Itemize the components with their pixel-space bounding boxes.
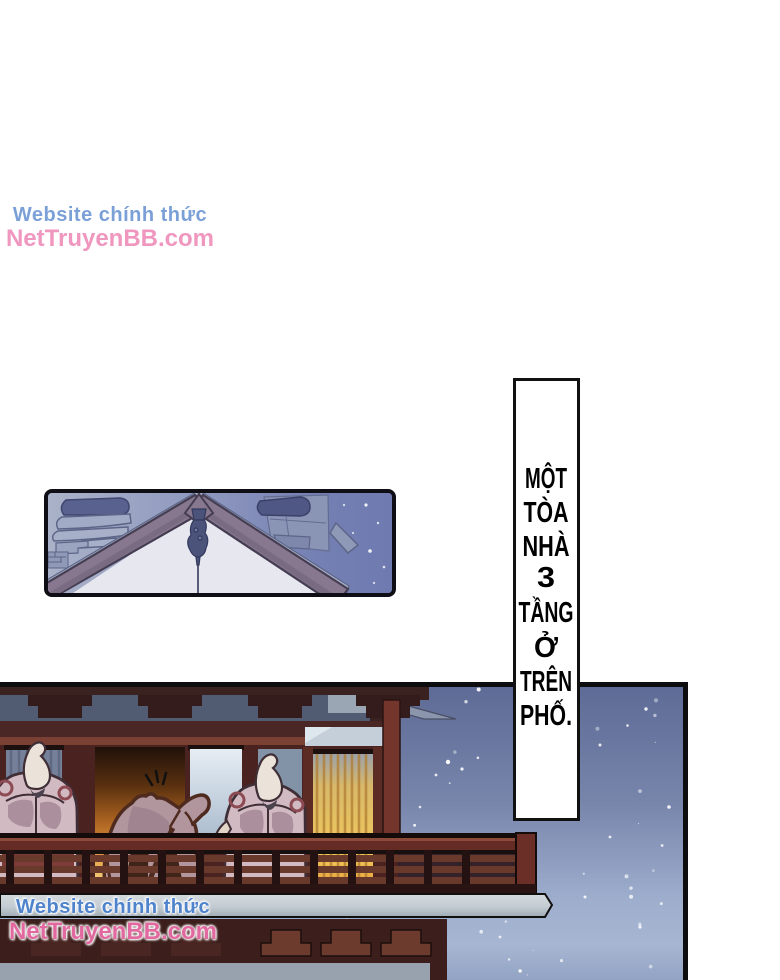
svg-text:Ở: Ở: [534, 630, 558, 664]
svg-text:TẦNG: TẦNG: [519, 595, 574, 629]
svg-text:TRÊN: TRÊN: [520, 664, 572, 698]
svg-text:PHỐ.: PHỐ.: [520, 698, 572, 732]
svg-text:MỘT: MỘT: [525, 461, 567, 495]
svg-text:NHÀ: NHÀ: [523, 529, 570, 563]
svg-text:TÒA: TÒA: [524, 495, 569, 529]
svg-text:3: 3: [537, 562, 555, 594]
